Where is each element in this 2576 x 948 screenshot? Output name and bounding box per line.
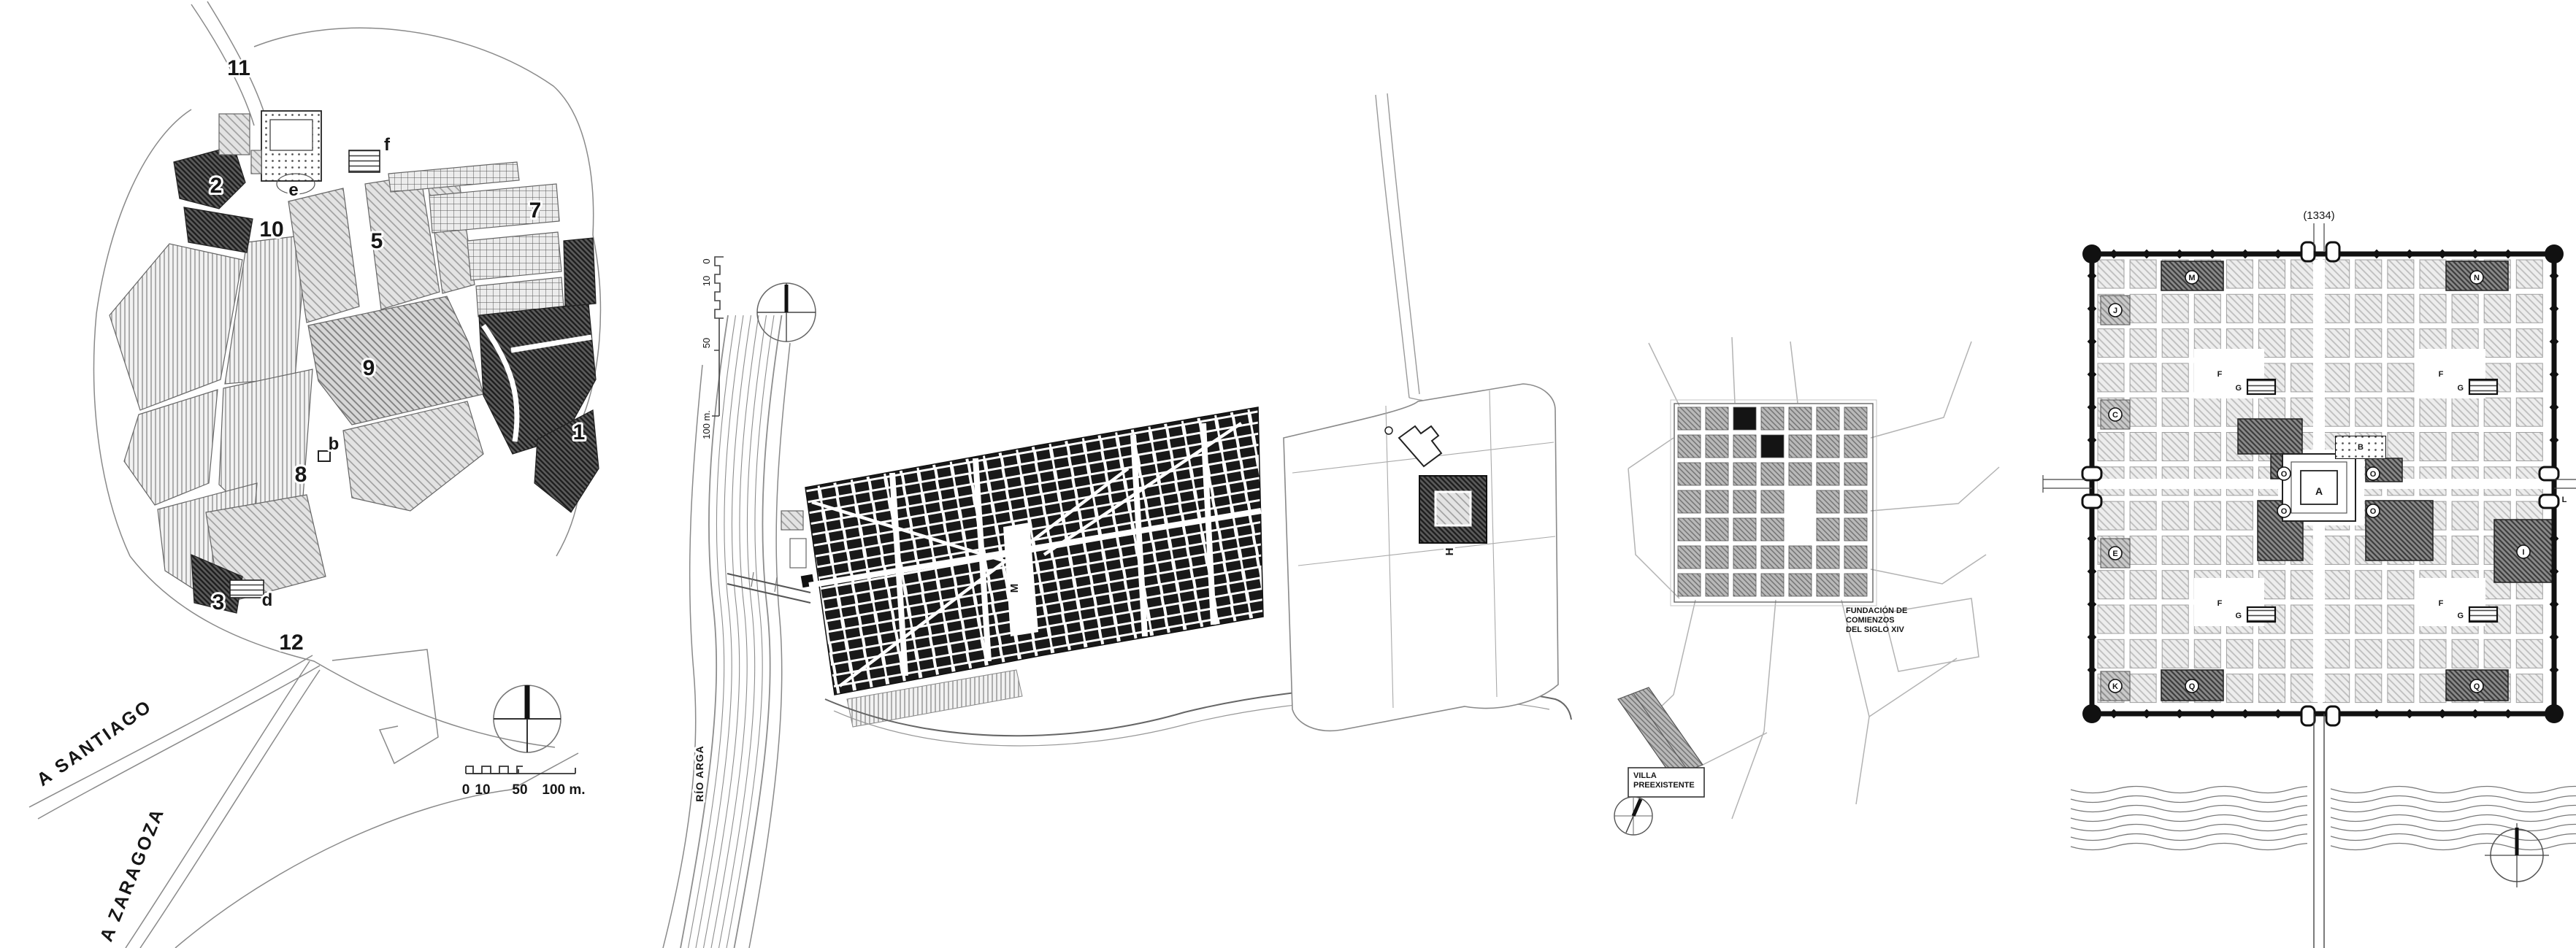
- circled-letter-m: M: [2188, 274, 2195, 282]
- city-block: [2388, 433, 2414, 461]
- city-block: [2194, 433, 2220, 461]
- wall-tower: [2504, 250, 2513, 259]
- city-block: [2130, 329, 2156, 358]
- wall-tower: [2088, 633, 2097, 642]
- city-block: [2388, 363, 2414, 392]
- cloister-courtyard: [1435, 492, 1471, 525]
- wall-tower: [2088, 436, 2097, 445]
- city-block: [2130, 501, 2156, 530]
- label-g: G: [2235, 384, 2242, 393]
- city-block: [2194, 536, 2220, 564]
- city-block: [2420, 639, 2446, 668]
- city-block: [2194, 294, 2220, 323]
- city-block: [2355, 639, 2382, 668]
- wall-tower: [2088, 304, 2097, 314]
- city-block: [2323, 571, 2350, 599]
- wall-tower: [2088, 403, 2097, 412]
- city-block: [2130, 536, 2156, 564]
- circled-letter-j: J: [2113, 307, 2117, 315]
- label-m: M: [1008, 584, 1021, 593]
- grid-block: [1817, 518, 1839, 541]
- label-5: 5: [371, 229, 383, 253]
- city-block: [2420, 398, 2446, 426]
- city-block: [2130, 433, 2156, 461]
- city-block: [2452, 501, 2478, 530]
- city-block: [2162, 501, 2188, 530]
- city-block: [2162, 536, 2188, 564]
- city-block: [2516, 639, 2542, 668]
- wall-tower: [2438, 250, 2447, 259]
- city-block: [2323, 260, 2350, 288]
- label-7: 7: [529, 199, 542, 223]
- wall-tower: [2088, 600, 2097, 609]
- city-block: [2516, 674, 2542, 703]
- circled-letter-n: N: [2474, 274, 2480, 282]
- city-block: [2484, 294, 2510, 323]
- label-100-m.: 100 m.: [701, 410, 712, 439]
- wall-tower: [2208, 709, 2217, 719]
- city-block: [2420, 260, 2446, 288]
- grid-block: [1761, 574, 1784, 596]
- city-block: [2194, 398, 2220, 426]
- label-3: 3: [212, 590, 225, 614]
- wall-tower: [2175, 250, 2185, 259]
- city-block: [2226, 639, 2253, 668]
- city-block: [2452, 639, 2478, 668]
- wall-tower: [2142, 250, 2152, 259]
- wall-tower: [2550, 370, 2559, 379]
- label-10: 10: [475, 782, 490, 798]
- grid-block: [1733, 546, 1756, 569]
- city-block: [2162, 433, 2188, 461]
- wall-tower: [2504, 709, 2513, 719]
- circled-letter-i: I: [2522, 548, 2524, 557]
- grid-block: [1733, 407, 1756, 430]
- city-block: [2323, 639, 2350, 668]
- wall-tower: [2241, 250, 2250, 259]
- city-block: [2226, 501, 2253, 530]
- wall-tower: [2471, 250, 2480, 259]
- label-0: 0: [701, 258, 712, 263]
- panel-1-scale-bar: [466, 766, 575, 774]
- wall-tower: [2550, 600, 2559, 609]
- city-block: [2162, 398, 2188, 426]
- city-block: [2130, 294, 2156, 323]
- grid-block: [1678, 407, 1701, 430]
- city-block: [2388, 260, 2414, 288]
- label-11: 11: [227, 56, 250, 80]
- city-block: [2516, 363, 2542, 392]
- label-line: PREEXISTENTE: [1633, 781, 1695, 790]
- city-block: [2162, 329, 2188, 358]
- panel-4-compass-rose: [2485, 823, 2549, 887]
- city-block: [2355, 329, 2382, 358]
- city-block: [2355, 605, 2382, 633]
- label-f: F: [2439, 599, 2444, 608]
- wall-tower: [2241, 709, 2250, 719]
- city-block: [2355, 571, 2382, 599]
- city-block: [2259, 260, 2285, 288]
- city-block: [2516, 260, 2542, 288]
- label-b: b: [329, 434, 340, 454]
- wall-tower: [2372, 709, 2382, 719]
- city-block: [2452, 294, 2478, 323]
- panel-2-east-suburb: [1284, 93, 1558, 731]
- city-block: [2420, 433, 2446, 461]
- city-block: [2355, 294, 2382, 323]
- city-block: [2484, 433, 2510, 461]
- city-block: [2130, 260, 2156, 288]
- wall-tower: [2088, 567, 2097, 577]
- hall-label: B: [2358, 443, 2364, 452]
- grid-block: [1817, 490, 1839, 513]
- label-10: 10: [701, 276, 712, 286]
- grid-block: [1733, 574, 1756, 596]
- circled-letter-o: O: [2281, 507, 2288, 516]
- grid-block: [1706, 407, 1728, 430]
- label-a-zaragoza: A ZARAGOZA: [96, 804, 169, 944]
- panel-2-town-core: [781, 407, 1263, 727]
- wall-tower: [2405, 250, 2415, 259]
- river-stroke: [689, 315, 736, 948]
- circled-letter-q: Q: [2474, 682, 2480, 691]
- label-f: F: [2217, 370, 2223, 379]
- south-road: [2307, 714, 2331, 948]
- city-block: [2098, 639, 2124, 668]
- label-9: 9: [363, 356, 375, 380]
- wall-tower: [2088, 534, 2097, 544]
- label-a-santiago: A SANTIAGO: [33, 695, 156, 790]
- north-needle: [1633, 799, 1641, 816]
- panel-2-bridge: [727, 572, 814, 603]
- city-block: [2516, 605, 2542, 633]
- label-f: f: [384, 135, 391, 155]
- wall-tower: [2438, 709, 2447, 719]
- city-block: [2323, 536, 2350, 564]
- wall-tower: [2550, 304, 2559, 314]
- city-block: [2162, 605, 2188, 633]
- wall-tower: [2088, 370, 2097, 379]
- grid-block: [1844, 518, 1867, 541]
- label-10: 10: [259, 217, 283, 242]
- foundation-date-label: (1334): [2303, 209, 2334, 222]
- panel-2-riverside-town-plan: RÍO ARGA MH 01050100 m.: [663, 93, 1571, 948]
- plaza-label: A: [2315, 485, 2323, 497]
- panel-1-blocks: [110, 146, 599, 613]
- panel-1-organic-town-plan: 1121057981312 febd A SANTIAGOA ZARAGOZA …: [29, 1, 600, 948]
- city-block: [2226, 260, 2253, 288]
- grid-block: [1706, 463, 1728, 485]
- grid-block: [1761, 463, 1784, 485]
- city-block: [2452, 398, 2478, 426]
- wall-tower: [2088, 666, 2097, 675]
- city-block: [2162, 571, 2188, 599]
- panel-1-scale-labels: 01050100 m.: [462, 782, 586, 798]
- gate-label: L: [2562, 496, 2567, 504]
- city-block: [2355, 260, 2382, 288]
- grid-block: [1844, 463, 1867, 485]
- city-block: [2130, 674, 2156, 703]
- grid-block: [1761, 546, 1784, 569]
- city-block: [2323, 605, 2350, 633]
- building-f: [349, 150, 380, 172]
- grid-block: [1733, 463, 1756, 485]
- plans-svg: 1121057981312 febd A SANTIAGOA ZARAGOZA …: [0, 0, 2576, 948]
- wall-tower: [2550, 271, 2559, 281]
- grid-block: [1844, 574, 1867, 596]
- panel-1-compass-rose: [494, 685, 561, 752]
- label-line: COMIENZOS: [1846, 616, 1895, 625]
- city-block: [2323, 674, 2350, 703]
- city-block: [2388, 329, 2414, 358]
- wall-tower: [2088, 271, 2097, 281]
- grid-block: [1733, 435, 1756, 458]
- label-50: 50: [701, 338, 712, 348]
- grid-block: [1844, 435, 1867, 458]
- city-block: [2323, 363, 2350, 392]
- circled-letter-o: O: [2370, 470, 2377, 479]
- panel-2-scale-labels: 01050100 m.: [701, 258, 712, 439]
- city-block: [2484, 639, 2510, 668]
- city-block: [2194, 501, 2220, 530]
- label-0: 0: [462, 782, 470, 798]
- circled-letter-o: O: [2281, 470, 2288, 479]
- circled-letter-e: E: [2112, 550, 2117, 558]
- grid-block: [1817, 463, 1839, 485]
- city-block: [2226, 674, 2253, 703]
- building-d: [230, 580, 264, 598]
- label-line: VILLA: [1633, 771, 1657, 780]
- wall-tower: [2550, 403, 2559, 412]
- river-stroke: [719, 315, 767, 948]
- label-12: 12: [279, 631, 303, 655]
- circled-letter-o: O: [2370, 507, 2377, 516]
- wall-tower: [2372, 250, 2382, 259]
- label-50: 50: [512, 782, 527, 798]
- city-block: [2323, 329, 2350, 358]
- circled-letter-c: C: [2112, 411, 2118, 420]
- wall-tower: [2550, 436, 2559, 445]
- grid-block: [1817, 435, 1839, 458]
- grid-block: [1817, 574, 1839, 596]
- grid-block: [1706, 435, 1728, 458]
- city-block: [2259, 639, 2285, 668]
- label-1: 1: [573, 420, 586, 444]
- river-stroke: [681, 315, 728, 948]
- river-name-label: RÍO ARGA: [694, 745, 705, 801]
- label-8: 8: [295, 463, 307, 487]
- city-block: [2388, 398, 2414, 426]
- wall-tower: [2088, 337, 2097, 347]
- grid-block: [1844, 490, 1867, 513]
- grid-block: [1789, 574, 1812, 596]
- city-block: [2259, 674, 2285, 703]
- grid-block: [1844, 407, 1867, 430]
- grid-block: [1733, 518, 1756, 541]
- city-block: [2130, 605, 2156, 633]
- grid-block: [1761, 518, 1784, 541]
- city-block: [2098, 433, 2124, 461]
- label-2: 2: [210, 174, 223, 198]
- grid-block: [1678, 518, 1701, 541]
- wall-tower: [2405, 709, 2415, 719]
- city-block: [2162, 363, 2188, 392]
- panel-2-compass-rose: [757, 283, 816, 342]
- city-block: [2484, 398, 2510, 426]
- figure-four-town-plans: 1121057981312 febd A SANTIAGOA ZARAGOZA …: [0, 0, 2576, 948]
- circled-letter-q: Q: [2189, 682, 2196, 691]
- city-block: [2098, 260, 2124, 288]
- foundation-label: FUNDACIÓN DECOMIENZOSDEL SIGLO XIV: [1846, 606, 1907, 634]
- grid-block: [1678, 463, 1701, 485]
- panel-1-road-labels: A SANTIAGOA ZARAGOZA: [33, 695, 169, 944]
- city-block: [2388, 639, 2414, 668]
- label-line: FUNDACIÓN DE: [1846, 606, 1907, 615]
- wall-tower: [2550, 633, 2559, 642]
- city-block: [2130, 363, 2156, 392]
- wall-tower: [2274, 250, 2283, 259]
- city-block: [2323, 398, 2350, 426]
- label-e: e: [288, 180, 298, 200]
- grid-block: [1817, 407, 1839, 430]
- wall-tower: [2142, 709, 2152, 719]
- label-f: F: [2217, 599, 2223, 608]
- city-block: [2259, 294, 2285, 323]
- wall-tower: [2550, 337, 2559, 347]
- city-block: [2098, 329, 2124, 358]
- grid-block: [1789, 463, 1812, 485]
- label-h: H: [1444, 548, 1456, 556]
- grid-block: [1678, 574, 1701, 596]
- wall-tower: [2274, 709, 2283, 719]
- panel-1-roads: [29, 655, 320, 948]
- grid-block: [1789, 546, 1812, 569]
- wall-tower: [2109, 709, 2119, 719]
- city-block: [2098, 363, 2124, 392]
- city-block: [2130, 398, 2156, 426]
- wall-tower: [2109, 250, 2119, 259]
- city-block: [2388, 294, 2414, 323]
- river-stroke: [727, 315, 774, 948]
- city-block: [2323, 294, 2350, 323]
- river-stroke: [704, 315, 751, 948]
- grid-block: [1678, 435, 1701, 458]
- river-arga: [681, 315, 782, 948]
- panel-3-compass-rose: [1614, 797, 1652, 835]
- city-block: [2420, 294, 2446, 323]
- city-block: [2098, 571, 2124, 599]
- city-block: [2355, 363, 2382, 392]
- villa-preexistente-area: [1618, 687, 1703, 776]
- city-block: [2388, 571, 2414, 599]
- city-block: [2452, 433, 2478, 461]
- label-g: G: [2235, 612, 2242, 620]
- city-block: [2226, 536, 2253, 564]
- wall-tower: [2175, 709, 2185, 719]
- city-block: [2130, 571, 2156, 599]
- city-block: [2098, 605, 2124, 633]
- grid-block: [1706, 490, 1728, 513]
- wall-tower: [2208, 250, 2217, 259]
- grid-block: [1761, 407, 1784, 430]
- grid-block: [1678, 546, 1701, 569]
- grid-block: [1844, 546, 1867, 569]
- city-block: [2388, 674, 2414, 703]
- label-100-m.: 100 m.: [542, 782, 585, 798]
- city-block: [2162, 639, 2188, 668]
- city-block: [2452, 536, 2478, 564]
- grid-block: [1817, 546, 1839, 569]
- city-block: [2516, 433, 2542, 461]
- grid-block: [1789, 435, 1812, 458]
- panel-3-foundation-plan: VILLAPREEXISTENTE FUNDACIÓN DECOMIENZOSD…: [1614, 337, 1999, 835]
- grid-block: [1706, 546, 1728, 569]
- circled-letter-k: K: [2112, 682, 2118, 691]
- wall-tower: [2471, 709, 2480, 719]
- wall-tower: [2550, 666, 2559, 675]
- city-block: [2388, 605, 2414, 633]
- label-g: G: [2457, 612, 2464, 620]
- panel-4-bastide-plan: MNJCEKQQIOOOO (1334) A B L FFFF GGGG: [2043, 209, 2576, 948]
- grid-block: [1761, 490, 1784, 513]
- city-block: [2130, 639, 2156, 668]
- city-block: [2162, 294, 2188, 323]
- city-block: [2355, 674, 2382, 703]
- label-line: DEL SIGLO XIV: [1846, 625, 1905, 634]
- city-block: [2420, 674, 2446, 703]
- label-f: F: [2439, 370, 2444, 379]
- label-d: d: [262, 590, 273, 610]
- city-block: [2516, 398, 2542, 426]
- grid-block: [1789, 407, 1812, 430]
- city-block: [2516, 294, 2542, 323]
- foundation-grid-blocks: [1678, 407, 1867, 596]
- city-block: [2355, 398, 2382, 426]
- river-stroke: [735, 315, 782, 948]
- grid-block: [1706, 518, 1728, 541]
- grid-block: [1706, 574, 1728, 596]
- city-block: [2516, 329, 2542, 358]
- label-g: G: [2457, 384, 2464, 393]
- grid-block: [1733, 490, 1756, 513]
- city-block: [2226, 294, 2253, 323]
- city-block: [2194, 639, 2220, 668]
- grid-block: [1761, 435, 1784, 458]
- grid-block: [1678, 490, 1701, 513]
- city-block: [2484, 329, 2510, 358]
